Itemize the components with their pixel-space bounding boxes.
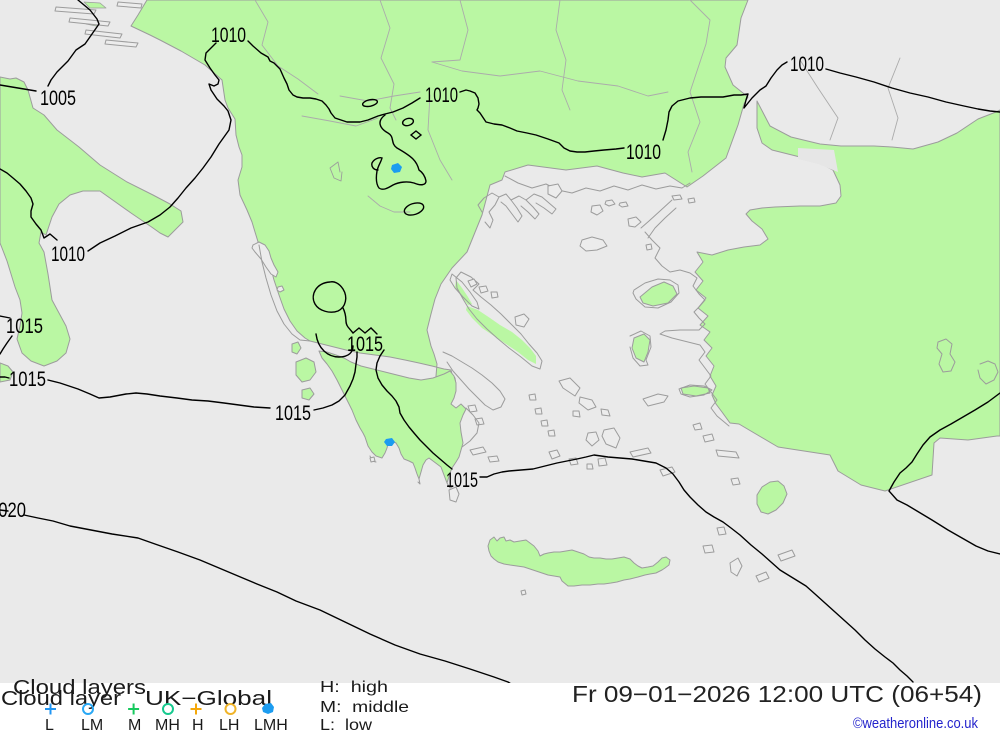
svg-text:1010: 1010 xyxy=(51,243,85,266)
svg-text:1015: 1015 xyxy=(275,402,311,425)
svg-text:LMH: LMH xyxy=(254,717,288,733)
svg-text:1015: 1015 xyxy=(446,469,478,492)
svg-text:1020: 1020 xyxy=(0,499,26,522)
svg-text:©weatheronline.co.uk: ©weatheronline.co.uk xyxy=(853,715,978,732)
svg-text:M: M xyxy=(128,717,141,733)
svg-text:LH: LH xyxy=(219,717,239,733)
svg-text:L: L xyxy=(45,717,54,733)
svg-text:L: low: L: low xyxy=(320,717,372,733)
svg-text:M: middle: M: middle xyxy=(320,699,409,716)
svg-text:LM: LM xyxy=(81,717,103,733)
svg-text:1005: 1005 xyxy=(40,87,76,110)
svg-text:Fr 09−01−2026 12:00 UTC (06+54: Fr 09−01−2026 12:00 UTC (06+54) xyxy=(572,681,982,707)
svg-text:MH: MH xyxy=(155,717,180,733)
svg-text:Cloud layer: Cloud layer xyxy=(1,688,121,710)
svg-text:1010: 1010 xyxy=(211,24,246,47)
svg-text:1010: 1010 xyxy=(425,84,458,107)
svg-text:1010: 1010 xyxy=(790,53,824,76)
svg-text:1010: 1010 xyxy=(626,141,661,164)
svg-text:1015: 1015 xyxy=(9,368,46,391)
svg-text:1015: 1015 xyxy=(347,333,383,356)
svg-text:H: high: H: high xyxy=(320,679,388,696)
svg-text:1015: 1015 xyxy=(6,315,43,338)
svg-text:H: H xyxy=(192,717,204,733)
